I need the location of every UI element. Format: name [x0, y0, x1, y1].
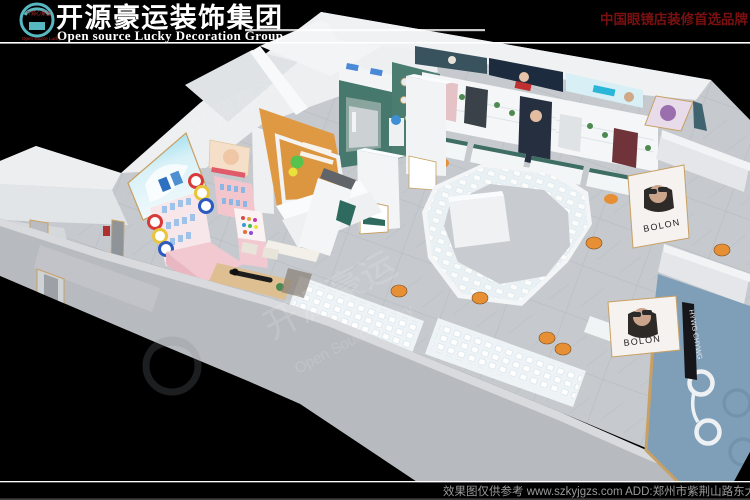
- svg-text:Open source Lucky Decoration G: Open source Lucky Decoration Group: [57, 28, 283, 43]
- svg-text:开源心豪运: 开源心豪运: [26, 10, 51, 17]
- svg-text:Open source Lucky: Open source Lucky: [22, 36, 62, 41]
- svg-text:效果图仅供参考 www.szkyjgzs.com AD: 效果图仅供参考 www.szkyjgzs.com ADD:郑州市紫荆山路东大街5…: [443, 484, 750, 498]
- svg-text:中国眼镜店装修首选品牌: 中国眼镜店装修首选品牌: [600, 11, 749, 27]
